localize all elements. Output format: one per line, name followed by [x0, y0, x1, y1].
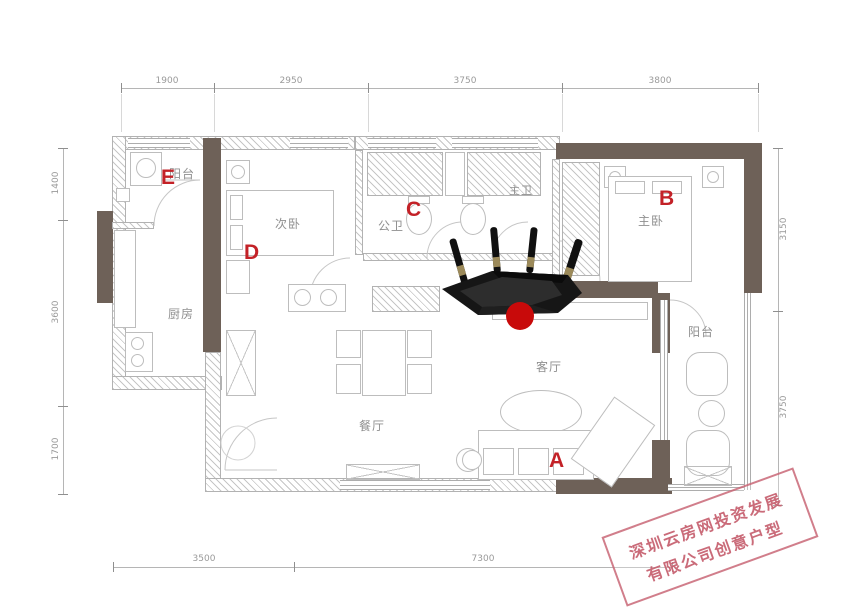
hall-shelf [372, 286, 440, 312]
burner-icon [131, 337, 144, 350]
dining-cabinet [346, 464, 420, 480]
dining-chair [336, 364, 361, 394]
pillow [230, 225, 243, 250]
bath-column [445, 152, 465, 196]
sink-icon [320, 289, 337, 306]
nightstand [226, 260, 250, 294]
dining-chair [407, 330, 432, 358]
marker-a: A [549, 449, 564, 473]
burner-icon [131, 354, 144, 367]
balcony-cabinet-right [684, 466, 732, 486]
room-label-balcony-right: 阳台 [677, 323, 725, 340]
sofa-cushion [518, 448, 549, 475]
dining-chair [336, 330, 361, 358]
balcony-chair [686, 352, 728, 396]
marker-e: E [161, 166, 175, 190]
balcony-table [698, 400, 725, 427]
shower-area-guest [367, 152, 443, 196]
router-position-dot [506, 302, 534, 330]
room-label-living: 客厅 [525, 358, 573, 375]
living-rug [500, 390, 582, 434]
marker-b: B [659, 187, 674, 211]
pillow [615, 181, 645, 194]
lamp-icon [707, 171, 719, 183]
sofa-cushion [483, 448, 514, 475]
sink-icon [294, 289, 311, 306]
floorplan-image: 1900 2950 3750 3800 3500 7300 1400 3600 … [0, 0, 858, 612]
room-label-master-bedroom: 主卧 [627, 212, 675, 229]
marker-c: C [406, 198, 421, 222]
room-label-kitchen: 厨房 [157, 305, 205, 322]
marker-d: D [244, 241, 259, 265]
floor-lamp-icon [462, 450, 482, 470]
shoe-cabinet [226, 330, 256, 396]
dining-table [362, 330, 406, 396]
dining-chair [407, 364, 432, 394]
room-label-second-bedroom: 次卧 [264, 215, 312, 232]
balcony-cabinet [116, 188, 130, 202]
room-label-master-bath: 主卫 [497, 182, 545, 198]
kitchen-counter [114, 230, 136, 328]
room-label-dining: 餐厅 [348, 417, 396, 434]
pillow [230, 195, 243, 220]
washing-machine-drum [136, 158, 156, 178]
ac-unit-fan [231, 165, 245, 179]
